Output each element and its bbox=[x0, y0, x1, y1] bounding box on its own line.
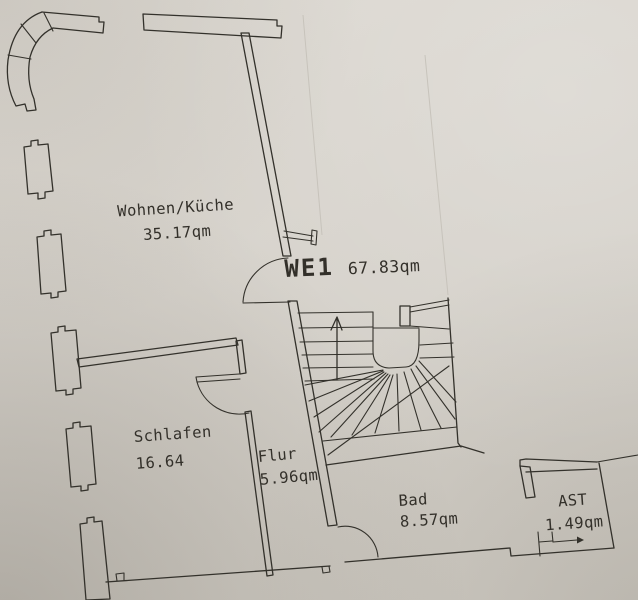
curved-wall-top-band bbox=[42, 12, 104, 33]
room-label-bad: Bad 8.57qm bbox=[398, 487, 459, 532]
wall-stub-cap bbox=[311, 230, 317, 245]
bottom-wall-left bbox=[106, 566, 330, 582]
room-label-flur: Flur 5.96qm bbox=[257, 441, 319, 492]
unit-area: 67.83qm bbox=[347, 253, 420, 281]
bedroom-door bbox=[196, 374, 249, 414]
stair-bottom-edge bbox=[326, 446, 484, 465]
up-arrow-icon bbox=[331, 317, 342, 380]
bathroom-door bbox=[338, 526, 378, 557]
stairwell-left-wall bbox=[288, 301, 337, 526]
stair-top-right-wall bbox=[410, 300, 449, 329]
winder-outer-edge bbox=[323, 427, 457, 441]
bottom-wall-right bbox=[345, 548, 614, 562]
top-wall bbox=[143, 14, 282, 38]
door-swing-arc bbox=[197, 382, 249, 414]
doors bbox=[196, 258, 378, 557]
door-swing-arc bbox=[338, 526, 378, 557]
kitchen-partition-wall bbox=[241, 33, 291, 256]
stair-wall-stub bbox=[400, 306, 410, 326]
room-label-wohnen-kueche: Wohnen/Küche 35.17qm bbox=[109, 192, 244, 250]
window-pier bbox=[24, 140, 53, 199]
interior-walls bbox=[77, 33, 337, 576]
right-treads bbox=[420, 343, 454, 358]
entry-arrow-line bbox=[553, 540, 577, 542]
window-pier bbox=[51, 326, 81, 395]
window-pier bbox=[37, 230, 66, 298]
wall-continuation bbox=[597, 455, 638, 462]
curved-wall-band bbox=[7, 12, 53, 111]
bedroom-hall-wall bbox=[245, 411, 273, 576]
stair-up-arrow bbox=[331, 317, 342, 380]
window-pier bbox=[80, 517, 110, 600]
west-window-piers bbox=[24, 140, 110, 600]
unit-entry-door bbox=[243, 258, 290, 303]
floorplan-scan: Wohnen/Küche 35.17qm WE1 67.83qm Schlafe… bbox=[0, 0, 638, 600]
curved-corner-wall bbox=[7, 12, 104, 111]
crease-line bbox=[425, 55, 448, 295]
staircase bbox=[298, 298, 484, 465]
bedroom-top-wall bbox=[77, 338, 238, 367]
stair-core bbox=[373, 312, 419, 368]
room-area: 8.57qm bbox=[399, 508, 459, 533]
ast-left-stub bbox=[520, 466, 535, 498]
room-name: Schlafen bbox=[133, 419, 213, 451]
room-label-ast: AST 1.49qm bbox=[536, 487, 611, 538]
door-leaf bbox=[196, 374, 240, 382]
door-leaf bbox=[243, 302, 290, 303]
unit-name: WE1 bbox=[284, 255, 334, 282]
ast-top-wall bbox=[520, 459, 597, 472]
window-pier bbox=[66, 422, 96, 491]
door-swing-arc bbox=[243, 258, 288, 302]
room-area: 16.64 bbox=[135, 446, 215, 478]
crease-line bbox=[303, 15, 322, 235]
right-arrow-icon bbox=[577, 537, 584, 544]
bottom-walls bbox=[106, 548, 614, 582]
room-label-schlafen: Schlafen 16.64 bbox=[133, 419, 214, 478]
stairwell-right-wall bbox=[448, 298, 461, 447]
